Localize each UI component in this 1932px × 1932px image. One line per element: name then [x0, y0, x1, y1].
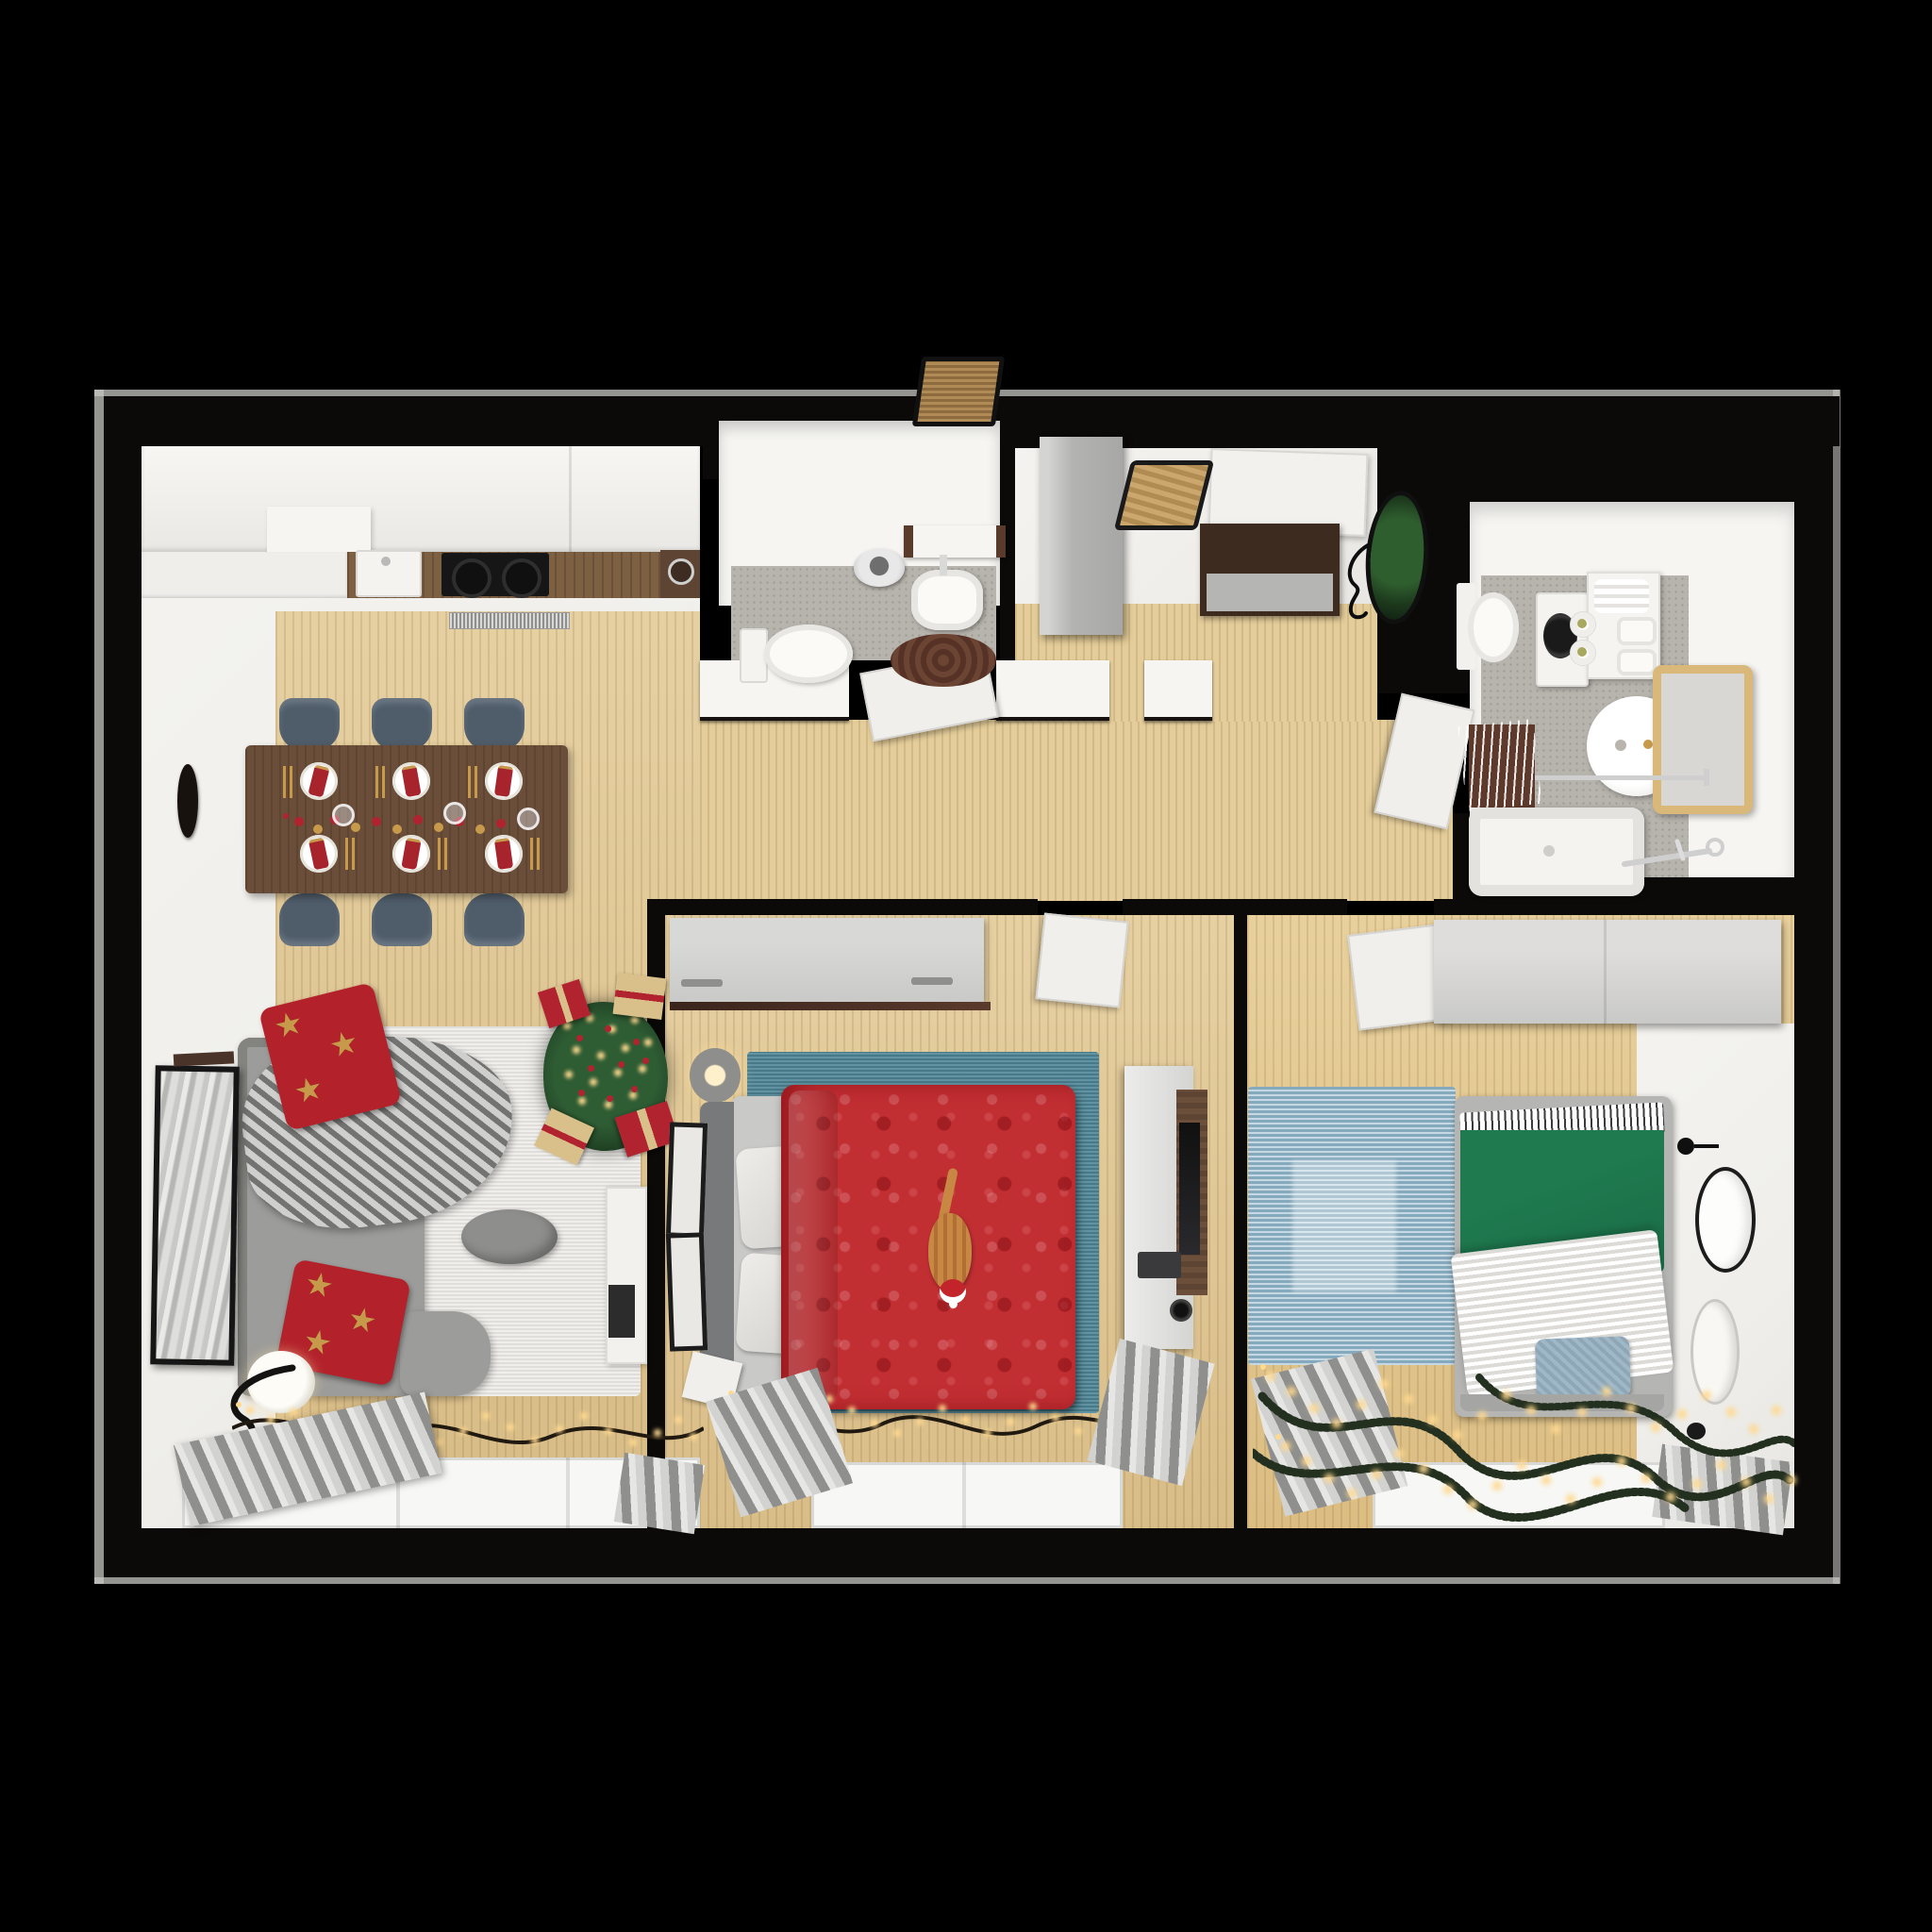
kitchen-upper-cabinets [142, 446, 700, 552]
line-art-wall-decor [1340, 540, 1374, 623]
dining-chair [464, 893, 525, 946]
pine-garland-lights [1260, 1364, 1266, 1370]
dining-chair [279, 893, 340, 946]
wall-bathroom-main-bottom-c [1144, 660, 1212, 721]
entry-console-front [1207, 574, 1333, 611]
cooktop-burner [502, 558, 541, 598]
wall-exterior-right [1794, 396, 1833, 1577]
brown-round-rug [891, 634, 996, 687]
kitchen-floor-vent [449, 612, 570, 629]
media-device [1138, 1252, 1181, 1278]
gold-star: ★ [326, 1025, 362, 1063]
bathroom-shelf [904, 525, 1006, 558]
leaning-frame [666, 1122, 708, 1238]
slab-edge-right [1833, 390, 1840, 1584]
drying-rack [1458, 719, 1542, 811]
basket [1617, 649, 1657, 675]
hallway-floor [700, 720, 1453, 901]
kitchen-counter-white [142, 552, 347, 598]
slab-edge-bottom [94, 1577, 1840, 1584]
gold-cutlery [438, 838, 447, 870]
oval-wall-mirror-dining [177, 764, 198, 838]
wardrobe-rail [670, 1002, 991, 1010]
wall-hook-pin [1694, 1144, 1719, 1148]
shower-fittings [1617, 826, 1749, 887]
pendant-light [854, 549, 905, 587]
curtain-living-right [614, 1453, 706, 1535]
basin-drain [1615, 740, 1626, 751]
jar-lid-olive [1577, 647, 1587, 657]
kitchen-small-basin [668, 558, 694, 585]
string-lights-living [236, 1402, 241, 1407]
bedside-lamp-table [690, 1048, 741, 1103]
master-wardrobe [670, 918, 984, 1002]
towel-rail-bracket [1704, 769, 1709, 786]
gold-star: ★ [345, 1302, 379, 1339]
gold-cutlery [375, 766, 385, 798]
gift-box [613, 973, 667, 1020]
marble-wall-art [150, 1065, 240, 1366]
table-centerpiece-baubles [283, 813, 289, 819]
duvet-fold [789, 1091, 838, 1402]
dining-chair [279, 698, 340, 751]
gold-star: ★ [291, 1071, 326, 1108]
wood-frame-mirror [1653, 665, 1753, 814]
second-wardrobe [1434, 920, 1781, 1024]
kitchen-faucet [381, 557, 391, 566]
gold-cutlery [530, 838, 540, 870]
window-master-mullion [962, 1462, 966, 1528]
wall-bedrooms-top-b [1123, 899, 1347, 915]
toilet-main-bowl [764, 625, 853, 683]
basket [1617, 617, 1657, 645]
door-bedroom-master [1035, 913, 1128, 1008]
tv-screen [1179, 1123, 1200, 1255]
blue-rug-highlight [1292, 1160, 1396, 1292]
dining-chair [372, 698, 432, 751]
table-glass [517, 808, 540, 830]
towel-stack [1594, 579, 1649, 613]
wall-bathroom-laundry-left-b [1453, 813, 1470, 877]
table-glass [443, 802, 466, 824]
entry-wardrobe-cabinet [1040, 437, 1123, 635]
kitchen-cabinet-seam [569, 446, 572, 552]
santa-hat-pom [949, 1300, 958, 1308]
gold-star: ★ [302, 1267, 336, 1304]
wall-between-bedrooms [1234, 915, 1247, 1528]
window-bedroom-master [811, 1462, 1123, 1528]
wall-exterior-bottom [104, 1528, 1833, 1577]
table-glass [332, 804, 355, 826]
gold-cutlery [283, 766, 292, 798]
pouf [461, 1209, 558, 1264]
wall-bedrooms-top-a [649, 899, 1038, 915]
gold-cutlery [345, 838, 355, 870]
pine-garland-branches [1253, 1340, 1794, 1528]
basin-tap-dot [1643, 740, 1653, 749]
gold-cutlery [468, 766, 477, 798]
cooktop-burner [452, 558, 491, 598]
master-wardrobe-handle [911, 977, 953, 985]
wall-top-right-bathroom [1453, 396, 1833, 502]
jar-lid-olive [1577, 619, 1587, 628]
slab-edge-left [94, 390, 104, 1584]
speaker [1170, 1299, 1192, 1322]
sofa-chaise [400, 1311, 491, 1396]
basin-faucet [940, 555, 947, 575]
dining-chair [372, 893, 432, 946]
dining-chair [464, 698, 525, 751]
door-mat-front-entrance [912, 357, 1005, 426]
sideboard-tv [608, 1285, 635, 1338]
gold-star: ★ [271, 1007, 307, 1044]
master-wardrobe-handle [681, 979, 723, 987]
floor-plan-canvas: ★ ★ ★ ★ ★ ★ [0, 0, 1932, 1932]
pine-garland-lights [1275, 1434, 1281, 1440]
bathtub-drain [1543, 845, 1555, 857]
entry-bench [1114, 460, 1214, 530]
leaning-frame [666, 1232, 708, 1351]
toilet-laundry-bowl [1468, 592, 1519, 662]
washbasin-main [911, 570, 983, 630]
second-wardrobe-seam [1604, 920, 1607, 1024]
wall-hook [1677, 1138, 1694, 1155]
wall-clock [1695, 1167, 1756, 1273]
door-bathroom-laundry [1374, 693, 1474, 830]
wall-bathroom-main-bottom-b [996, 660, 1109, 721]
